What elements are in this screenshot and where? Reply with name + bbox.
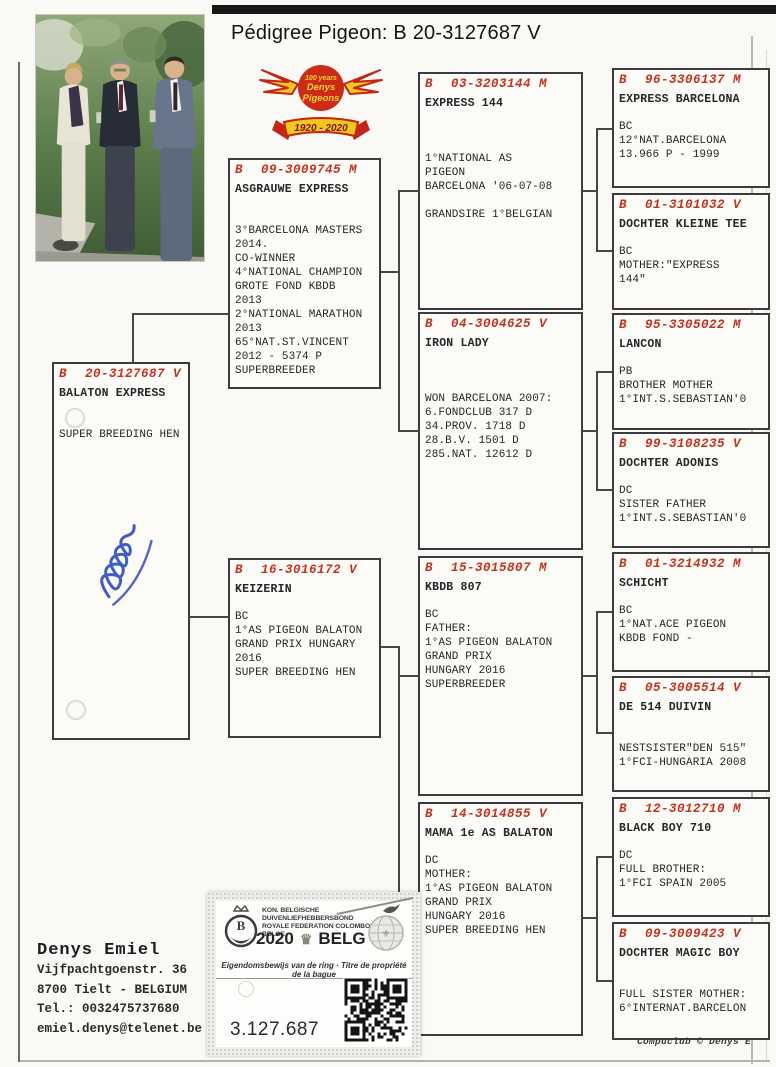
connector-line: [398, 190, 400, 432]
pedigree-box-mother: B16-3016172 V KEIZERIN BC 1°AS PIGEON BA…: [228, 558, 381, 738]
pedigree-box-grandsire-paternal: B03-3203144 M EXPRESS 144 1°NATIONAL AS …: [418, 72, 583, 310]
hologram-globe-icon: ⚜: [366, 913, 406, 953]
pigeon-name: BALATON EXPRESS: [59, 387, 183, 400]
connector-line: [398, 430, 418, 432]
pigeon-name: DOCHTER KLEINE TEE: [619, 218, 763, 231]
svg-text:1920 - 2020: 1920 - 2020: [294, 123, 348, 134]
ring-number: B20-3127687 V: [59, 367, 183, 384]
ring-number: B96-3306137 M: [619, 73, 763, 90]
pigeon-notes: BC FATHER: 1°AS PIGEON BALATON GRAND PRI…: [425, 594, 576, 692]
pigeon-notes: DC SISTER FATHER 1°INT.S.SEBASTIAN'0: [619, 470, 763, 526]
ring-ownership-certificate: B KON. BELGISCHE DUIVENLIEFHEBBERSBOND R…: [207, 892, 421, 1056]
pigeon-name: LANCON: [619, 338, 763, 351]
pigeon-notes: DC MOTHER: 1°AS PIGEON BALATON GRAND PRI…: [425, 840, 576, 938]
pedigree-box-greatgrandparent-4: B99-3108235 V DOCHTER ADONIS DC SISTER F…: [612, 432, 770, 548]
pigeon-notes: BC MOTHER:"EXPRESS 144": [619, 231, 763, 287]
breeder-family-photo: [35, 14, 205, 262]
connector-line: [381, 271, 400, 273]
connector-line: [596, 250, 612, 252]
ring-number: B05-3005514 V: [619, 681, 763, 698]
page-title: Pédigree Pigeon: B 20-3127687 V: [231, 22, 751, 45]
svg-text:Denys: Denys: [307, 82, 336, 93]
owner-phone: Tel.: 0032475737680: [37, 1001, 202, 1019]
pigeon-name: BLACK BOY 710: [619, 822, 763, 835]
ring-number: B16-3016172 V: [235, 563, 374, 580]
software-credit: Compuclub © Denys E: [637, 1036, 751, 1047]
pigeon-name: MAMA 1e AS BALATON: [425, 827, 576, 840]
connector-line: [596, 611, 612, 613]
owner-email: emiel.denys@telenet.be: [37, 1021, 202, 1039]
connector-line: [398, 675, 418, 677]
connector-line: [596, 732, 612, 734]
pedigree-box-greatgrandparent-5: B01-3214932 M SCHICHT BC 1°NAT.ACE PIGEO…: [612, 552, 770, 672]
connector-line: [398, 646, 400, 918]
connector-line: [583, 675, 596, 677]
ring-number: B95-3305022 M: [619, 318, 763, 335]
pigeon-notes: 1°NATIONAL AS PIGEON BARCELONA '06-07-08…: [425, 110, 576, 222]
connector-line: [596, 128, 598, 252]
owner-address-street: Vijfpachtgoenstr. 36: [37, 962, 202, 980]
ring-number: B03-3203144 M: [425, 77, 576, 94]
owner-name: Denys Emiel: [37, 941, 202, 960]
crown-icon: ♛: [300, 931, 313, 948]
pedigree-box-greatgrandparent-3: B95-3305022 M LANCON PB BROTHER MOTHER 1…: [612, 313, 770, 430]
connector-line: [583, 917, 596, 919]
pigeon-name: DE 514 DUIVIN: [619, 701, 763, 714]
pedigree-box-greatgrandparent-8: B09-3009423 V DOCHTER MAGIC BOY FULL SIS…: [612, 922, 770, 1040]
pigeon-notes: PB BROTHER MOTHER 1°INT.S.SEBASTIAN'0: [619, 351, 763, 407]
connector-line: [596, 371, 598, 491]
connector-line: [381, 646, 400, 648]
connector-line: [132, 313, 228, 315]
pigeon-notes: BC 1°AS PIGEON BALATON GRAND PRIX HUNGAR…: [235, 596, 374, 680]
ring-number: B01-3101032 V: [619, 198, 763, 215]
pigeon-notes: BC 1°NAT.ACE PIGEON KBDB FOND -: [619, 590, 763, 646]
certificate-inner: B KON. BELGISCHE DUIVENLIEFHEBBERSBOND R…: [216, 901, 412, 1047]
ring-number: B01-3214932 M: [619, 557, 763, 574]
ring-number: B09-3009423 V: [619, 927, 763, 944]
pigeon-notes: WON BARCELONA 2007: 6.FONDCLUB 317 D 34.…: [425, 350, 576, 462]
pigeon-notes: NESTSISTER"DEN 515" 1°FCI-HUNGARIA 2008: [619, 714, 763, 770]
pigeon-notes: FULL SISTER MOTHER: 6°INTERNAT.BARCELON: [619, 960, 763, 1016]
pigeon-name: KBDB 807: [425, 581, 576, 594]
pedigree-box-greatgrandparent-7: B12-3012710 M BLACK BOY 710 DC FULL BROT…: [612, 797, 770, 917]
connector-line: [583, 190, 596, 192]
pedigree-box-greatgrandparent-6: B05-3005514 V DE 514 DUIVIN NESTSISTER"D…: [612, 676, 770, 792]
pigeon-name: KEIZERIN: [235, 583, 374, 596]
svg-text:100 years: 100 years: [305, 75, 337, 82]
pedigree-box-greatgrandparent-2: B01-3101032 V DOCHTER KLEINE TEE BC MOTH…: [612, 193, 770, 310]
svg-text:⚜: ⚜: [382, 929, 391, 940]
label-punch-hole: [238, 981, 254, 997]
scan-edge-top: [212, 5, 776, 14]
svg-text:Pigeons: Pigeons: [303, 93, 340, 104]
ring-serial-number: 3.127.687: [230, 1019, 319, 1041]
scan-edge-bottom: [20, 1060, 770, 1062]
pigeon-notes: 3°BARCELONA MASTERS 2014. CO-WINNER 4°NA…: [235, 196, 374, 378]
breeder-signature: [60, 455, 204, 650]
connector-line: [596, 856, 612, 858]
pedigree-box-father: B09-3009745 M ASGRAUWE EXPRESS 3°BARCELO…: [228, 158, 381, 389]
pigeon-name: DOCHTER MAGIC BOY: [619, 947, 763, 960]
certificate-header: B KON. BELGISCHE DUIVENLIEFHEBBERSBOND R…: [216, 901, 412, 979]
connector-line: [596, 128, 612, 130]
connector-line: [583, 430, 596, 432]
connector-line: [596, 489, 612, 491]
svg-text:B: B: [237, 918, 246, 933]
pigeon-name: EXPRESS BARCELONA: [619, 93, 763, 106]
denys-pigeons-logo: 100 years Denys Pigeons 1920 - 2020: [258, 56, 384, 148]
scan-edge-left: [18, 62, 20, 1062]
federation-emblem-icon: B: [222, 905, 260, 951]
ring-number: B12-3012710 M: [619, 802, 763, 819]
ring-number: B99-3108235 V: [619, 437, 763, 454]
ring-country: BELG: [318, 929, 365, 949]
connector-line: [596, 980, 612, 982]
pigeon-name: EXPRESS 144: [425, 97, 576, 110]
pedigree-box-granddam-maternal: B14-3014855 V MAMA 1e AS BALATON DC MOTH…: [418, 802, 583, 1036]
ring-number: B15-3015807 M: [425, 561, 576, 578]
pigeon-notes: DC FULL BROTHER: 1°FCI SPAIN 2005: [619, 835, 763, 891]
owner-address-city: 8700 Tielt - BELGIUM: [37, 982, 202, 1000]
connector-line: [596, 856, 598, 982]
connector-line: [398, 190, 418, 192]
owner-contact-block: Denys Emiel Vijfpachtgoenstr. 36 8700 Ti…: [37, 941, 202, 1038]
pigeon-name: DOCHTER ADONIS: [619, 457, 763, 470]
connector-line: [596, 611, 598, 734]
ring-year: 2020: [256, 929, 294, 949]
punch-hole: [65, 408, 85, 428]
qr-code: [343, 977, 409, 1043]
punch-hole: [66, 700, 86, 720]
pigeon-name: SCHICHT: [619, 577, 763, 590]
pedigree-box-granddam-paternal: B04-3004625 V IRON LADY WON BARCELONA 20…: [418, 312, 583, 550]
pigeon-name: ASGRAUWE EXPRESS: [235, 183, 374, 196]
pedigree-box-greatgrandparent-1: B96-3306137 M EXPRESS BARCELONA BC 12°NA…: [612, 68, 770, 188]
ring-number: B09-3009745 M: [235, 163, 374, 180]
ring-number: B04-3004625 V: [425, 317, 576, 334]
pigeon-notes: BC 12°NAT.BARCELONA 13.966 P - 1999: [619, 106, 763, 162]
pedigree-box-grandsire-maternal: B15-3015807 M KBDB 807 BC FATHER: 1°AS P…: [418, 556, 583, 796]
connector-line: [596, 371, 612, 373]
ring-number: B14-3014855 V: [425, 807, 576, 824]
pigeon-name: IRON LADY: [425, 337, 576, 350]
